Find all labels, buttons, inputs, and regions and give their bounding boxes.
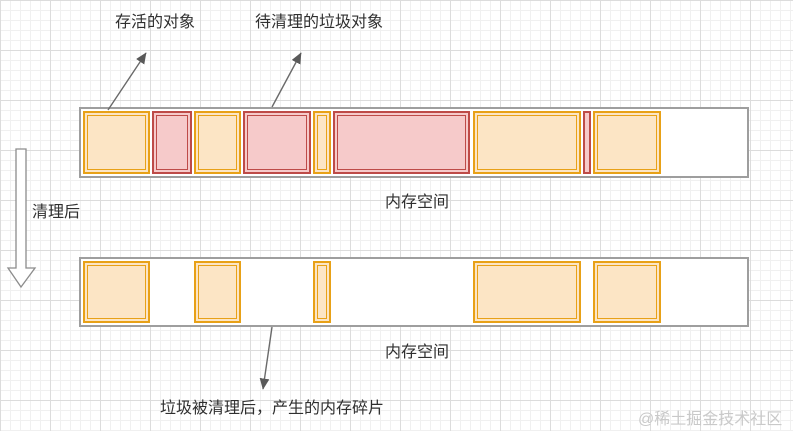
diagram-canvas: 存活的对象 待清理的垃圾对象 清理后 内存空间 内存空间 垃圾被清理后，产生的内… <box>0 0 793 431</box>
live-object-block <box>194 111 241 174</box>
watermark: @稀土掘金技术社区 <box>638 405 782 429</box>
label-fragment-caption: 垃圾被清理后，产生的内存碎片 <box>160 400 384 418</box>
garbage-object-pointer-arrow <box>272 53 301 107</box>
live-object-block <box>473 261 581 323</box>
garbage-object-block <box>243 111 311 174</box>
live-object-block <box>593 111 661 174</box>
live-object-block <box>83 261 150 323</box>
label-memory-space-before: 内存空间 <box>385 194 449 212</box>
arrow-overlay <box>0 0 793 431</box>
garbage-object-block <box>333 111 470 174</box>
label-after-cleanup: 清理后 <box>32 204 80 222</box>
label-garbage-objects: 待清理的垃圾对象 <box>255 14 383 32</box>
cleanup-down-arrow <box>8 149 35 287</box>
garbage-object-block <box>152 111 192 174</box>
live-object-block <box>194 261 241 323</box>
live-object-block <box>473 111 581 174</box>
live-object-block <box>593 261 661 323</box>
live-object-block <box>83 111 150 174</box>
memory-bar-after <box>79 257 749 327</box>
garbage-object-block <box>583 111 591 174</box>
live-object-pointer-arrow <box>108 53 146 110</box>
live-object-block <box>313 261 331 323</box>
live-object-block <box>313 111 331 174</box>
memory-bar-before <box>79 107 749 178</box>
label-memory-space-after: 内存空间 <box>385 344 449 362</box>
label-live-objects: 存活的对象 <box>115 14 195 32</box>
fragment-pointer-arrow <box>263 327 272 389</box>
